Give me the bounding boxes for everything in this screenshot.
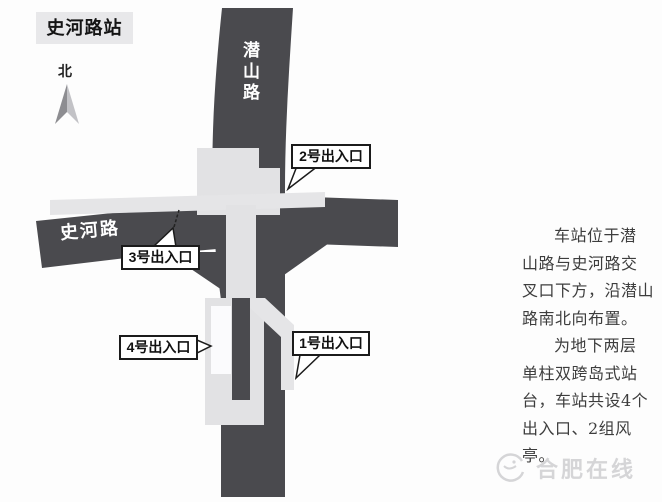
description-line: 叉口下方，沿潜山 xyxy=(522,277,662,305)
station-platform-column xyxy=(226,205,256,300)
exit4-passage-shape xyxy=(211,306,231,374)
description-line: 为地下两层 xyxy=(522,332,662,360)
exit1-callout-pointer xyxy=(296,355,320,378)
description-line: 车站位于潜 xyxy=(522,222,662,250)
watermark-text: 合肥在线 xyxy=(536,452,636,484)
station-description: 车站位于潜 山路与史河路交 叉口下方，沿潜山 路南北向布置。 为地下两层 单柱双… xyxy=(522,222,662,470)
exit3-callout: 3号出入口 xyxy=(121,245,200,270)
exit2-callout: 2号出入口 xyxy=(291,144,371,169)
description-line: 台，车站共设4个 xyxy=(522,387,662,415)
description-line: 单柱双跨岛式站 xyxy=(522,360,662,388)
station-south-block-road-gap xyxy=(232,298,250,400)
north-label: 北 xyxy=(58,61,72,81)
swirl-logo-icon xyxy=(492,449,530,487)
description-line: 路南北向布置。 xyxy=(522,305,662,333)
exit1-callout: 1号出入口 xyxy=(292,331,370,356)
station-title: 史河路站 xyxy=(36,12,133,44)
north-arrow-icon xyxy=(55,84,67,124)
intersection-corner-se xyxy=(284,241,332,275)
road-label-qianshan: 潜山路 xyxy=(241,41,258,104)
description-line: 山路与史河路交 xyxy=(522,250,662,278)
watermark: 合肥在线 xyxy=(492,449,636,487)
exit4-callout: 4号出入口 xyxy=(119,335,198,360)
station-location-map: 史河路站 北 潜山路 史河路 2号出入口 3号出入口 4号出入口 1号出入口 车… xyxy=(0,0,662,502)
road-label-shihe: 史河路 xyxy=(59,214,121,245)
exit2-callout-pointer xyxy=(288,166,318,189)
north-arrow-icon-right-half xyxy=(67,84,79,124)
